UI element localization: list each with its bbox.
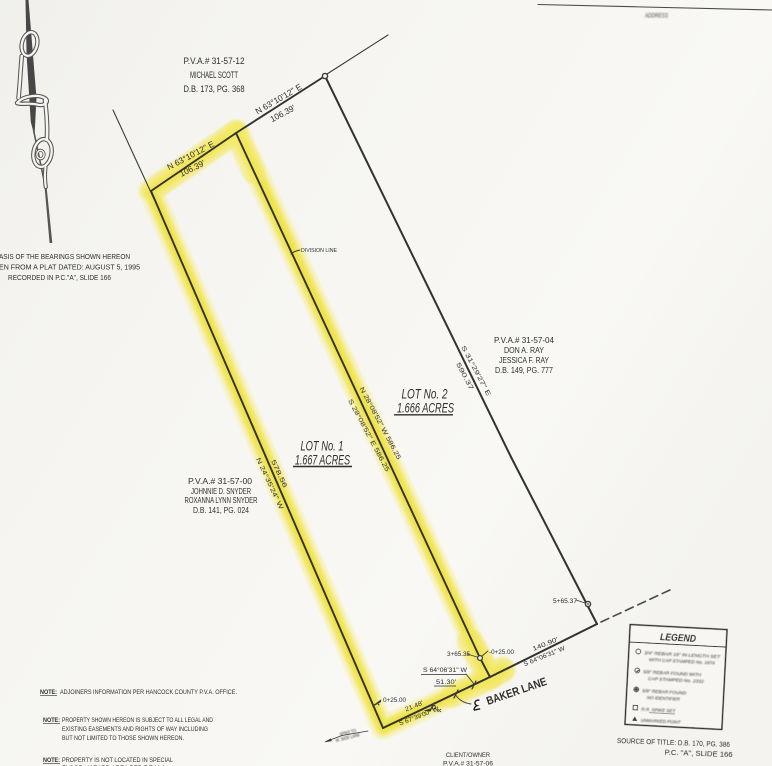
svg-text:51.30': 51.30' [436,679,456,686]
svg-text:EN FROM A PLAT DATED: AUGUST 5: EN FROM A PLAT DATED: AUGUST 5, 1995 [0,263,140,272]
svg-text:5+65.37: 5+65.37 [553,599,578,605]
svg-text:P.V.A.# 31-57-04: P.V.A.# 31-57-04 [494,336,555,345]
svg-text:CLIENT/OWNER: CLIENT/OWNER [446,752,490,759]
svg-text:NOTE:: NOTE: [43,757,60,764]
svg-text:MICHAEL SCOTT: MICHAEL SCOTT [190,70,238,80]
svg-text:NOTE:: NOTE: [40,689,57,696]
svg-text:S 64°06'31" W: S 64°06'31" W [423,666,468,674]
svg-text:LOT No. 2: LOT No. 2 [402,386,448,402]
svg-text:EXISTING EASEMENTS AND RIGHTS: EXISTING EASEMENTS AND RIGHTS OF WAY INC… [62,726,208,733]
svg-text:LOT No. 1: LOT No. 1 [301,438,344,454]
svg-text:P.V.A.# 31-57-00: P.V.A.# 31-57-00 [188,477,253,486]
svg-text:D.B. 173, PG. 368: D.B. 173, PG. 368 [184,84,245,94]
svg-text:RECORDED IN P.C."A", SLIDE 166: RECORDED IN P.C."A", SLIDE 166 [8,273,111,282]
svg-text:1.666 ACRES: 1.666 ACRES [397,401,454,416]
svg-text:P.V.A.# 31-57-12: P.V.A.# 31-57-12 [184,56,245,66]
svg-text:NOTE:: NOTE: [43,717,60,724]
svg-text:DIVISION LINE: DIVISION LINE [301,248,337,254]
svg-text:0+25.00: 0+25.00 [383,698,407,704]
svg-text:ASIS OF THE BEARINGS SHOWN HER: ASIS OF THE BEARINGS SHOWN HEREON [0,252,130,261]
svg-text:LEGEND: LEGEND [660,631,697,645]
svg-text:ROXANNA LYNN SNYDER: ROXANNA LYNN SNYDER [185,496,258,505]
svg-text:D.B. 141, PG. 024: D.B. 141, PG. 024 [193,506,250,515]
svg-text:3+65.35: 3+65.35 [447,652,471,658]
svg-text:P.V.A.# 31-57-06: P.V.A.# 31-57-06 [443,761,493,766]
svg-text:PROPERTY SHOWN HEREON IS SUBJE: PROPERTY SHOWN HEREON IS SUBJECT TO ALL … [62,717,213,724]
svg-text:ADDRESS: ADDRESS [644,14,668,20]
svg-text:PROPERTY IS NOT LOCATED IN SPE: PROPERTY IS NOT LOCATED IN SPECIAL [62,757,173,764]
svg-text:JESSICA F. RAY: JESSICA F. RAY [499,356,550,365]
svg-text:1.667 ACRES: 1.667 ACRES [295,453,350,468]
svg-text:ADJOINERS INFORMATION PER HANC: ADJOINERS INFORMATION PER HANCOCK COUNTY… [60,689,237,696]
svg-text:BUT NOT LIMITED TO THOSE SHOWN: BUT NOT LIMITED TO THOSE SHOWN HEREON. [62,735,184,742]
svg-text:DON A. RAY: DON A. RAY [504,346,545,355]
svg-text:JOHNNIE D. SNYDER: JOHNNIE D. SNYDER [191,487,251,496]
svg-text:-0+25.00: -0+25.00 [489,650,515,656]
svg-text:D.B. 149, PG. 777: D.B. 149, PG. 777 [495,366,553,375]
